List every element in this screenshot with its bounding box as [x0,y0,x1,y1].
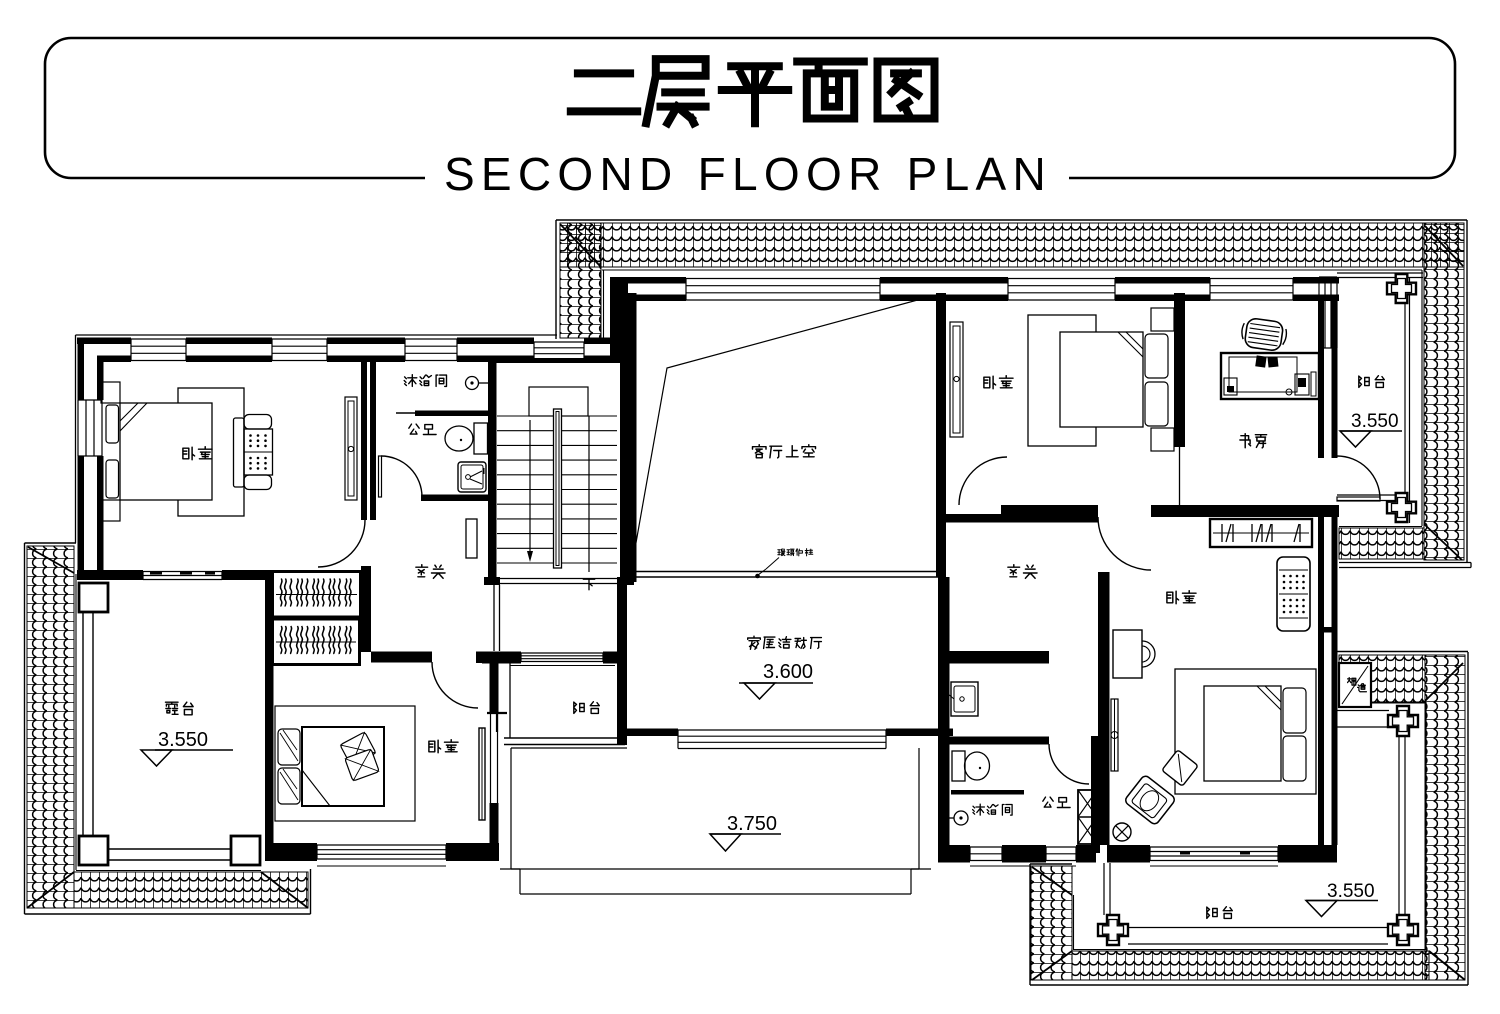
svg-text:3.550: 3.550 [158,729,208,751]
svg-text:3.750: 3.750 [727,813,777,835]
svg-text:SECOND FLOOR PLAN: SECOND FLOOR PLAN [444,148,1052,200]
svg-text:3.600: 3.600 [763,661,813,683]
svg-text:3.550: 3.550 [1351,411,1399,432]
svg-text:3.550: 3.550 [1327,881,1375,902]
